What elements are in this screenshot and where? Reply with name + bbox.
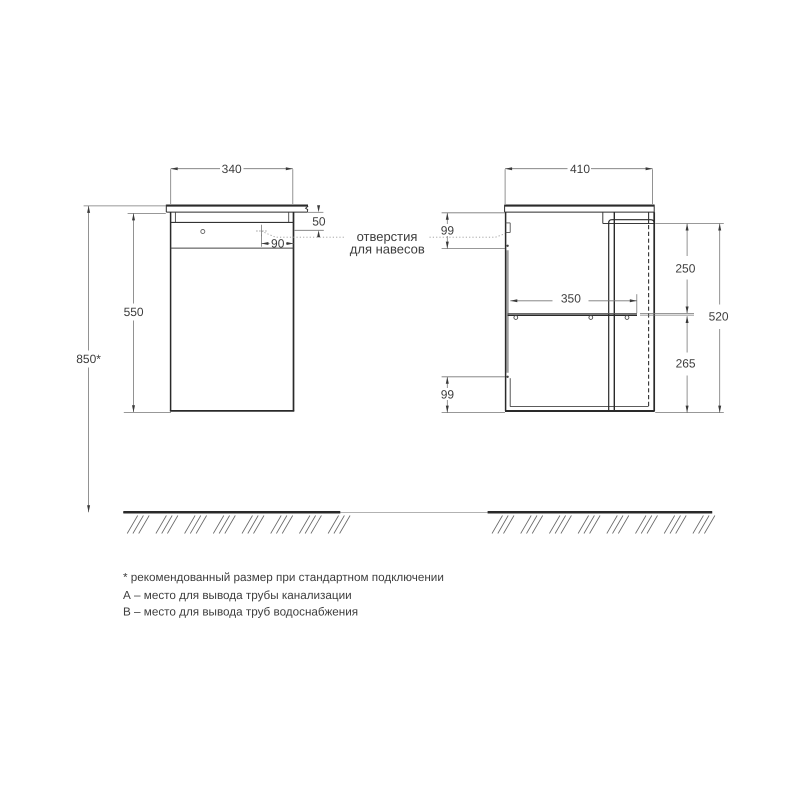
svg-text:для навесов: для навесов: [350, 241, 425, 256]
svg-text:265: 265: [676, 357, 696, 371]
svg-text:99: 99: [441, 223, 455, 237]
svg-text:99: 99: [441, 387, 455, 401]
svg-text:850*: 850*: [76, 352, 101, 366]
svg-text:А – место для вывода трубы кан: А – место для вывода трубы канализации: [123, 589, 352, 602]
svg-text:350: 350: [561, 292, 581, 306]
svg-text:520: 520: [709, 310, 729, 324]
svg-text:В – место для вывода труб водо: В – место для вывода труб водоснабжения: [123, 606, 358, 619]
svg-text:250: 250: [675, 261, 695, 275]
svg-text:90: 90: [271, 236, 285, 250]
svg-text:340: 340: [222, 162, 242, 176]
svg-text:550: 550: [124, 305, 144, 319]
svg-text:* рекомендованный размер при с: * рекомендованный размер при стандартном…: [123, 571, 444, 584]
svg-text:50: 50: [312, 215, 326, 229]
svg-text:410: 410: [570, 162, 590, 176]
